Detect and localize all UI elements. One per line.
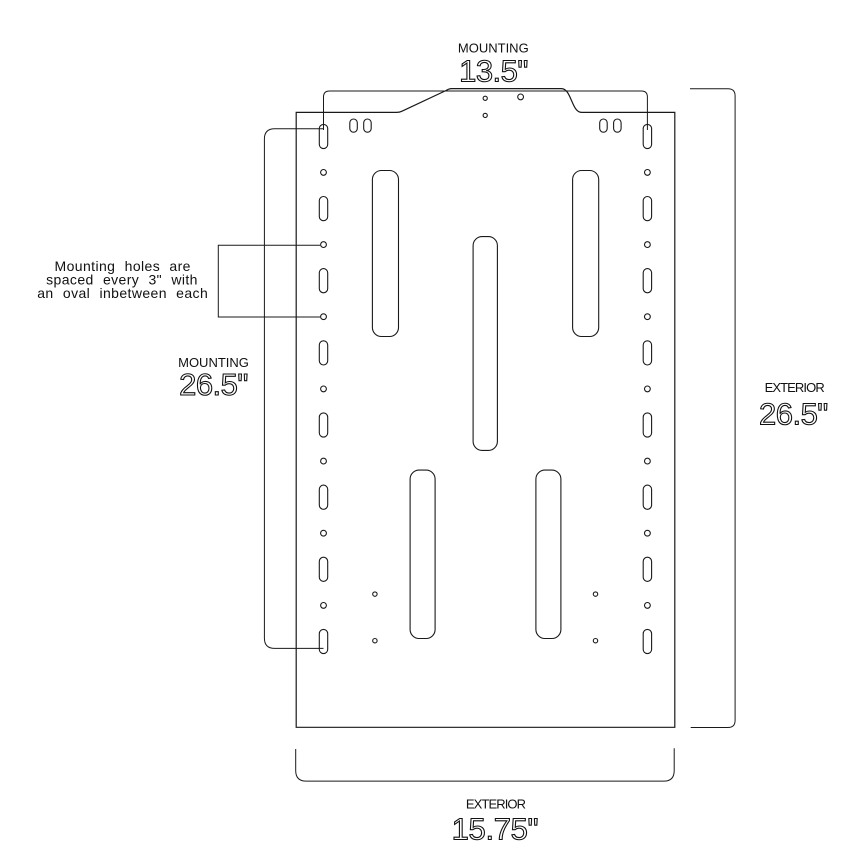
svg-text:26.5": 26.5": [759, 396, 828, 431]
svg-text:EXTERIOR: EXTERIOR: [466, 797, 526, 812]
svg-text:an oval inbetween each: an oval inbetween each: [37, 285, 208, 301]
svg-text:EXTERIOR: EXTERIOR: [765, 380, 825, 395]
svg-text:13.5": 13.5": [459, 54, 528, 89]
svg-text:26.5": 26.5": [179, 367, 248, 402]
svg-text:15.75": 15.75": [452, 812, 538, 847]
